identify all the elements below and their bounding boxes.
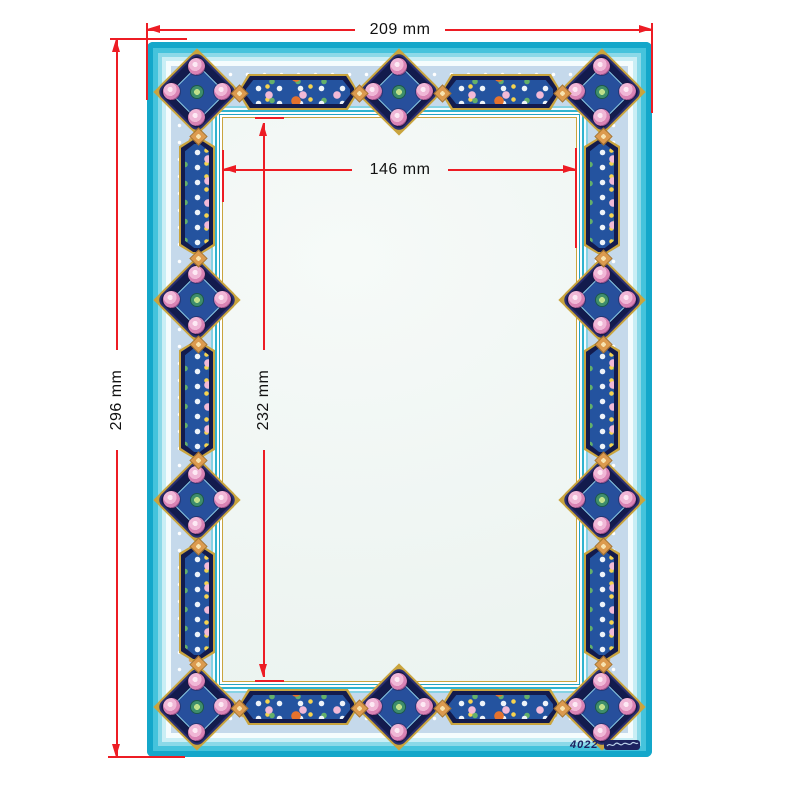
flower-motif xyxy=(619,291,636,308)
medallion xyxy=(358,666,440,748)
flower-motif xyxy=(214,83,231,100)
center-rosette xyxy=(393,86,405,98)
signature: 4022 xyxy=(570,738,640,752)
flower-motif xyxy=(619,83,636,100)
medallion xyxy=(358,51,440,133)
dim-line xyxy=(445,29,652,31)
flower-motif xyxy=(568,491,585,508)
center-rosette xyxy=(191,86,203,98)
cartouche-panel xyxy=(179,545,215,661)
flower-motif xyxy=(163,83,180,100)
dim-line xyxy=(448,169,576,171)
flower-motif xyxy=(163,698,180,715)
flower-motif xyxy=(188,673,205,690)
dim-line xyxy=(223,169,352,171)
extension-line xyxy=(110,38,187,40)
flower-motif xyxy=(390,58,407,75)
extension-line xyxy=(651,23,653,113)
medallion xyxy=(156,51,238,133)
flower-motif xyxy=(214,291,231,308)
paper-area xyxy=(223,118,576,681)
cartouche-panel xyxy=(240,689,356,725)
medallion xyxy=(561,51,643,133)
cartouche-panel xyxy=(179,138,215,254)
flower-motif xyxy=(416,698,433,715)
flower-motif xyxy=(188,266,205,283)
center-rosette xyxy=(596,86,608,98)
flower-motif xyxy=(163,291,180,308)
flower-motif xyxy=(593,317,610,334)
cartouche-panel xyxy=(179,342,215,458)
flower-motif xyxy=(214,698,231,715)
extension-line xyxy=(222,150,224,202)
arrowhead-left-icon xyxy=(147,25,160,33)
center-rosette xyxy=(596,494,608,506)
center-rosette xyxy=(191,294,203,306)
flower-motif xyxy=(593,58,610,75)
center-rosette xyxy=(191,701,203,713)
cartouche-panel xyxy=(584,342,620,458)
flower-motif xyxy=(416,83,433,100)
cartouche-panel xyxy=(443,74,559,110)
flower-motif xyxy=(390,724,407,741)
flower-motif xyxy=(593,109,610,126)
dim-line xyxy=(263,123,265,350)
dim-label-outer-height: 296 mm xyxy=(108,350,126,450)
medallion xyxy=(561,259,643,341)
flower-motif xyxy=(163,491,180,508)
extension-line xyxy=(255,117,284,119)
center-rosette xyxy=(393,701,405,713)
cartouche-panel xyxy=(240,74,356,110)
flower-motif xyxy=(390,673,407,690)
dim-line xyxy=(116,450,118,757)
arrowhead-up-icon xyxy=(259,123,267,136)
dim-line xyxy=(263,450,265,677)
cartouche-panel xyxy=(584,138,620,254)
cartouche-panel xyxy=(443,689,559,725)
center-rosette xyxy=(596,701,608,713)
extension-line xyxy=(146,23,148,100)
dim-label-inner-width: 146 mm xyxy=(352,161,448,179)
flower-motif xyxy=(593,266,610,283)
flower-motif xyxy=(619,491,636,508)
dim-label-outer-width: 209 mm xyxy=(355,21,445,39)
cartouche-panel xyxy=(584,545,620,661)
product-code: 4022 xyxy=(570,739,598,751)
medallion xyxy=(156,666,238,748)
extension-line xyxy=(575,148,577,248)
center-rosette xyxy=(596,294,608,306)
flower-motif xyxy=(188,109,205,126)
medallion xyxy=(156,259,238,341)
dim-line xyxy=(116,39,118,350)
arrowhead-up-icon xyxy=(112,39,120,52)
arrowhead-down-icon xyxy=(259,664,267,677)
extension-line xyxy=(255,680,284,682)
dim-label-inner-height: 232 mm xyxy=(255,350,273,450)
frame-spec-image: 4022 209 mm 296 mm 146 mm xyxy=(0,0,800,800)
flower-motif xyxy=(568,291,585,308)
medallion xyxy=(156,459,238,541)
flower-motif xyxy=(593,673,610,690)
maker-logo-icon xyxy=(604,738,640,752)
arrowhead-left-icon xyxy=(223,165,236,173)
medallion xyxy=(561,666,643,748)
flower-motif xyxy=(188,517,205,534)
flower-motif xyxy=(188,58,205,75)
flower-motif xyxy=(593,517,610,534)
dim-line xyxy=(147,29,355,31)
flower-motif xyxy=(390,109,407,126)
flower-motif xyxy=(619,698,636,715)
flower-motif xyxy=(188,317,205,334)
medallion xyxy=(561,459,643,541)
flower-motif xyxy=(214,491,231,508)
flower-motif xyxy=(188,724,205,741)
center-rosette xyxy=(191,494,203,506)
extension-line xyxy=(108,756,185,758)
